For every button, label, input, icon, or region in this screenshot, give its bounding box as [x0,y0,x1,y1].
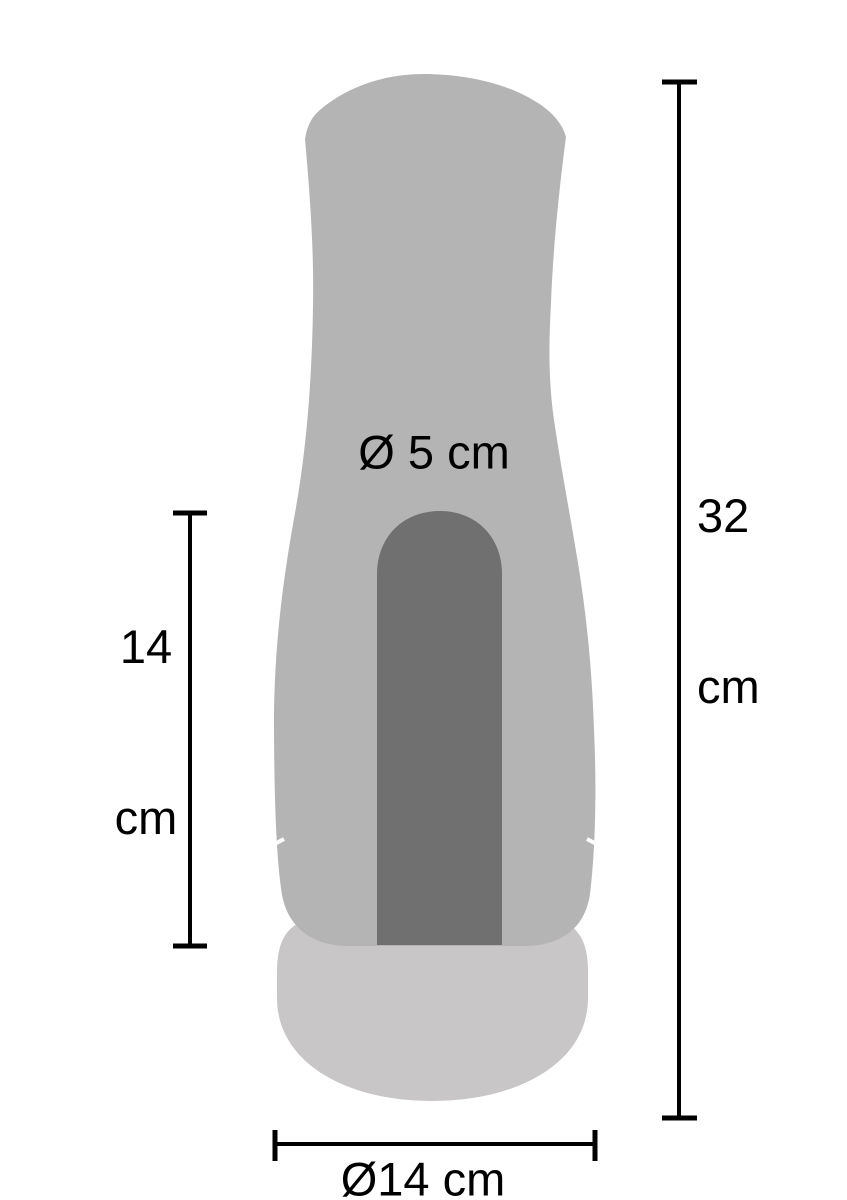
total-length-unit: cm [697,658,760,715]
inner-length-value: 14 [115,618,178,675]
inner-length-unit: cm [115,789,178,846]
total-length-label: 32 cm [697,373,760,829]
product-dimension-diagram: Ø 5 cm 14 cm 32 cm Ø14 cm [0,0,847,1200]
total-length-dimension-line [662,82,697,1118]
inner-length-dimension-line [173,513,207,946]
product-opening-shape [377,511,502,945]
inner-length-label: 14 cm [115,504,178,960]
total-length-value: 32 [697,487,760,544]
inner-diameter-label: Ø 5 cm [358,424,509,481]
outer-diameter-label: Ø14 cm [341,1151,506,1200]
